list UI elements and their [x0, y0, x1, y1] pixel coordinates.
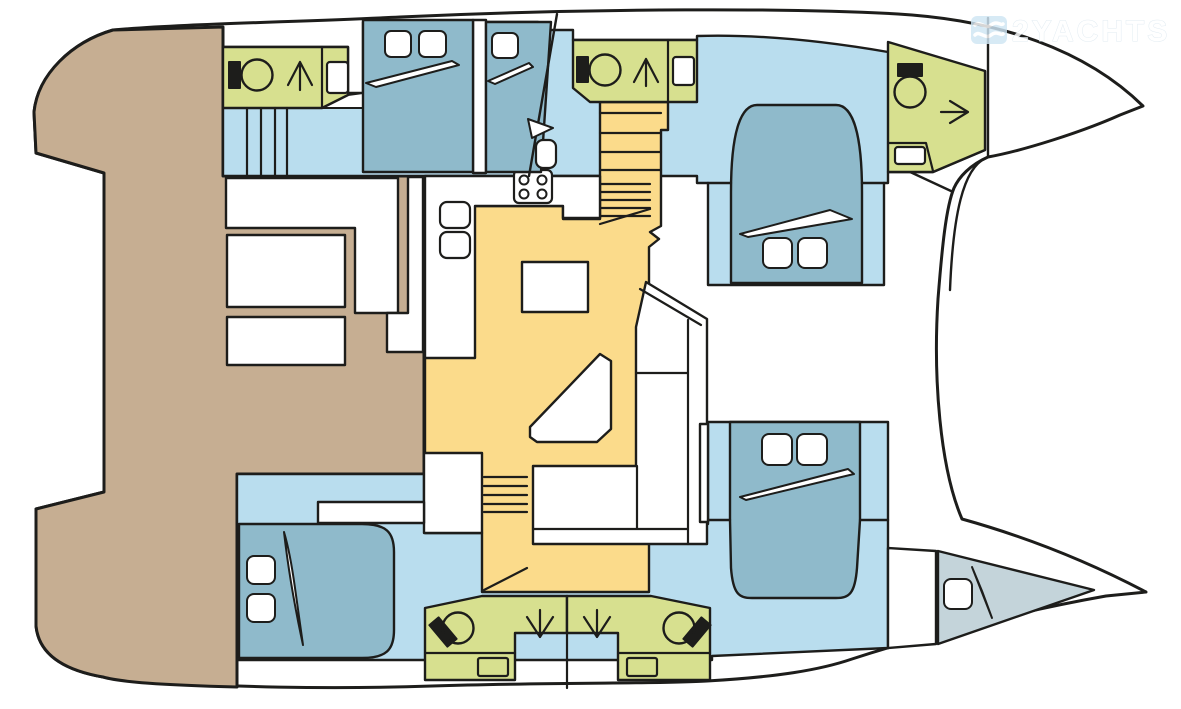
port-aft-head: [223, 47, 348, 108]
toilet-tank: [577, 57, 588, 82]
watermark-text: 2YACHTS: [1012, 15, 1170, 48]
sink-icon: [895, 147, 925, 164]
toilet-tank: [898, 64, 922, 76]
starboard-forward-bed: [730, 422, 860, 598]
sink-icon: [673, 57, 694, 85]
toilet-tank: [229, 62, 240, 88]
cockpit-table: [227, 235, 345, 307]
winch-icon: [536, 140, 556, 168]
salon-table: [522, 262, 588, 312]
starboard-aft-bed: [239, 524, 394, 658]
stair-landing: [424, 453, 482, 533]
watermark-logo-icon: [971, 16, 1007, 44]
stove-icon: [514, 170, 552, 203]
cockpit-aft-bench: [227, 317, 345, 365]
galley-sink-icon: [440, 202, 470, 228]
sink-icon: [327, 62, 348, 93]
cabin-bulkhead: [700, 424, 708, 522]
yacht-deck-plan: 2YACHTS: [0, 0, 1181, 709]
deck-plan-svg: 2YACHTS: [0, 0, 1181, 709]
watermark: 2YACHTS: [971, 15, 1170, 48]
port-forward-head: [573, 40, 697, 102]
galley-sink-icon: [440, 232, 470, 258]
crew-step: [888, 548, 936, 648]
port-forward-bed: [731, 105, 862, 283]
cabin-bulkhead: [473, 20, 486, 173]
bed-pillow: [944, 579, 972, 609]
berth-step: [318, 502, 424, 523]
